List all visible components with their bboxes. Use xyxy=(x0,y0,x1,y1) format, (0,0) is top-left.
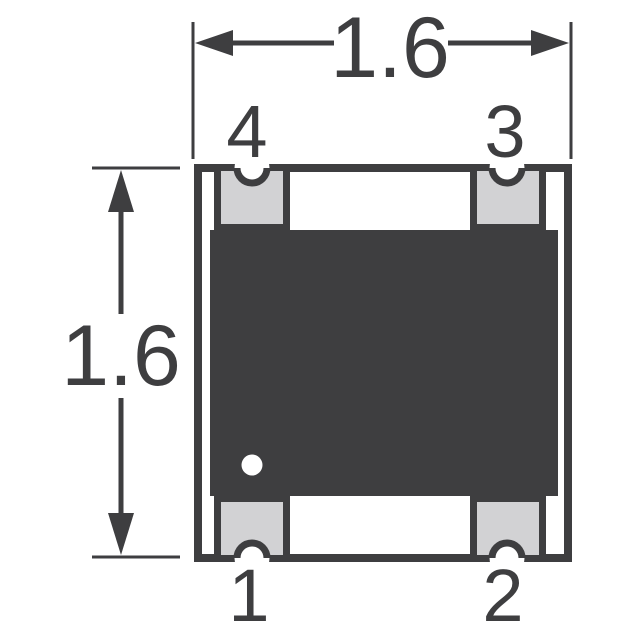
width-dimension-label: 1.6 xyxy=(330,0,450,96)
pin-label-3: 3 xyxy=(484,90,525,173)
die-body xyxy=(210,230,558,496)
package-dimension-drawing: 1.6 1.6 xyxy=(0,0,640,640)
pin-label-2: 2 xyxy=(482,554,523,637)
pin-label-1: 1 xyxy=(228,554,269,637)
pin1-indicator-dot xyxy=(242,455,263,476)
drawing-canvas: 1.6 1.6 xyxy=(0,0,640,640)
package-body xyxy=(198,151,568,576)
height-dimension-label: 1.6 xyxy=(61,308,181,404)
pin-label-4: 4 xyxy=(226,90,267,173)
